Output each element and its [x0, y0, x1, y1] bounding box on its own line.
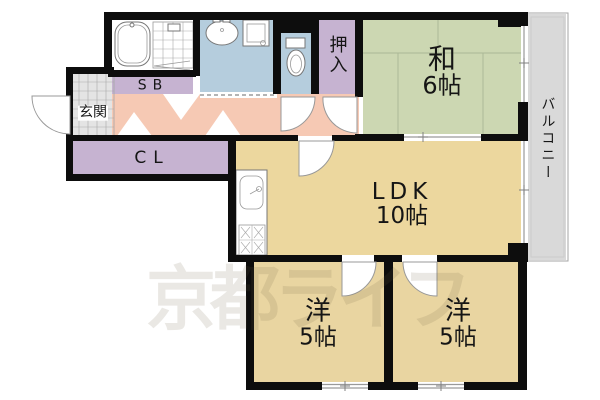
ldk-size: 10帖 [372, 204, 433, 228]
room-label-genkan: 玄関 [78, 106, 108, 121]
bathtub-icon [115, 22, 150, 66]
room-label-closet: CL [134, 150, 169, 168]
washitsu-size: 6帖 [422, 74, 461, 99]
washitsu-name: 和 [422, 45, 461, 74]
room-label-western1: 洋 5帖 [299, 298, 337, 349]
room-label-oshiire: 押入 [327, 35, 346, 75]
room-label-balcony: バルコニー [540, 97, 555, 182]
ldk-name: LDK [372, 180, 433, 204]
western1-size: 5帖 [299, 326, 337, 350]
floorplan: 京都ライフ 玄関 SB CL 押入 和 6帖 バルコニー LDK 10帖 洋 5… [0, 0, 600, 400]
western1-name: 洋 [299, 298, 337, 325]
kitchen-counter [236, 170, 267, 255]
toilet-icon [286, 38, 305, 76]
washing-machine-icon [243, 20, 269, 46]
stove-icon [239, 225, 265, 255]
room-label-western2: 洋 5帖 [439, 298, 477, 349]
room-label-shoebox: SB [138, 79, 169, 94]
western2-size: 5帖 [439, 326, 477, 350]
western2-name: 洋 [439, 298, 477, 325]
room-label-washitsu: 和 6帖 [422, 45, 461, 100]
sliding-door-dashes [200, 92, 277, 98]
room-label-ldk: LDK 10帖 [372, 180, 433, 228]
entry-door-arc [32, 96, 70, 134]
